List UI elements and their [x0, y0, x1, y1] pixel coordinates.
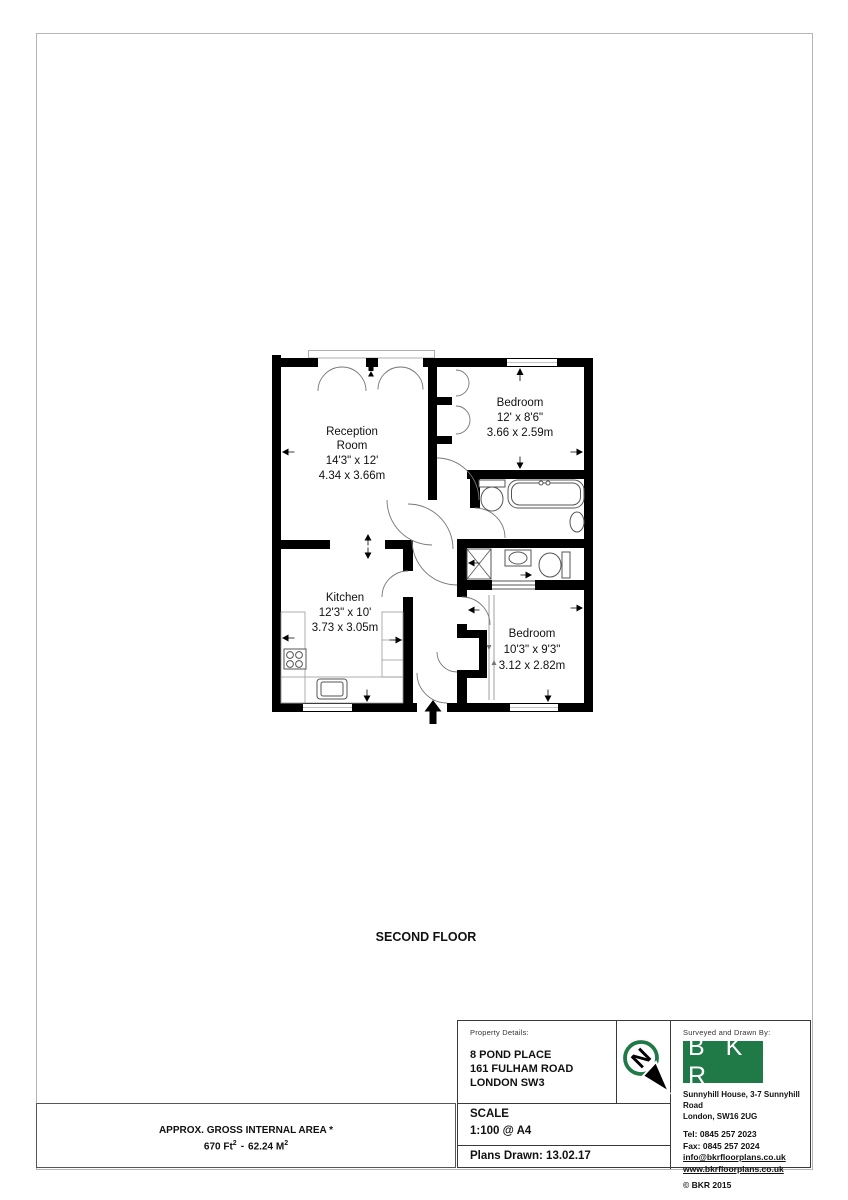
basin [570, 512, 584, 532]
room-label: Room [337, 440, 368, 452]
kitchen-sink-bowl [321, 682, 343, 696]
french-door-arc [318, 367, 342, 391]
room-label: 3.73 x 3.05m [312, 622, 378, 634]
toilet-cistern [479, 480, 505, 487]
toilet-cistern [562, 552, 570, 578]
room-label: Bedroom [497, 397, 544, 409]
bathroom-fixtures [479, 480, 584, 532]
plans-drawn-cell: Plans Drawn: 13.02.17 [458, 1146, 671, 1169]
bath-tap [546, 481, 550, 485]
closet-door-arc [456, 406, 470, 434]
room-label: 12' x 8'6" [497, 412, 543, 424]
room-label: Reception [326, 426, 378, 438]
scale-cell: SCALE 1:100 @ A4 [458, 1104, 671, 1146]
room-label: Kitchen [326, 592, 364, 604]
window-bedroom1-top [507, 359, 557, 367]
copyright-icon: © [683, 1180, 689, 1190]
entrance-arrow [425, 700, 442, 724]
toilet-bowl [481, 487, 503, 511]
floor-title: SECOND FLOOR [306, 930, 546, 944]
tel: Tel: 0845 257 2023 [683, 1129, 812, 1141]
toilet-bowl [539, 553, 561, 577]
scale-value: 1:100 @ A4 [470, 1125, 670, 1137]
entrance-door-arc [417, 673, 447, 703]
dimension-lines [487, 595, 497, 700]
room-label: 3.66 x 2.59m [487, 427, 553, 439]
gross-area-line2: 670 Ft2-62.24 M2 [37, 1137, 455, 1153]
website-link[interactable]: www.bkrfloorplans.co.uk [683, 1164, 812, 1176]
gross-area-line1: APPROX. GROSS INTERNAL AREA * [37, 1124, 455, 1137]
title-block: Property Details: 8 POND PLACE 161 FULHA… [457, 1020, 811, 1168]
room-label: 10'3" x 9'3" [504, 644, 561, 656]
basin-bowl [509, 552, 527, 564]
fax: Fax: 0845 257 2024 [683, 1141, 812, 1153]
bedroom2-door-arc [462, 597, 490, 625]
company-contact: Tel: 0845 257 2023 Fax: 0845 257 2024 in… [683, 1129, 812, 1175]
bath-tap [539, 481, 543, 485]
shower-room-fixtures [467, 549, 570, 579]
company-address: Sunnyhill House, 3-7 Sunnyhill Road Lond… [683, 1089, 811, 1122]
hall-door-arc [412, 540, 457, 585]
room-label: 3.12 x 2.82m [499, 660, 565, 672]
gross-area-note: APPROX. GROSS INTERNAL AREA * 670 Ft2-62… [36, 1103, 456, 1168]
email-link[interactable]: info@bkrfloorplans.co.uk [683, 1152, 812, 1164]
hall-door-arc [387, 500, 432, 545]
french-door-arc [342, 367, 366, 391]
bkr-logo: B K R [683, 1041, 763, 1083]
french-door-arc [378, 367, 401, 390]
room-label: 4.34 x 3.66m [319, 470, 385, 482]
room-label: Bedroom [509, 628, 556, 640]
balcony-outline [309, 351, 435, 359]
surveyor-cell: Surveyed and Drawn By: B K R Sunnyhill H… [671, 1021, 812, 1169]
compass-cell: N [616, 1021, 672, 1104]
window-bedroom2-bottom [510, 704, 558, 712]
plans-drawn: Plans Drawn: 13.02.17 [470, 1150, 670, 1162]
room-label: 12'3" x 10' [319, 607, 372, 619]
copyright: © BKR 2015 [683, 1180, 812, 1190]
closet-door-arc [456, 370, 469, 396]
shower-room-doorway [492, 581, 535, 589]
french-door-arc [401, 367, 424, 390]
kitchen-door-arc [382, 571, 408, 597]
window-kitchen-bottom [303, 704, 352, 712]
north-arrow-icon: N [617, 1021, 672, 1104]
room-label: 14'3" x 12' [326, 455, 379, 467]
bathroom-door-arc [475, 508, 505, 538]
scale-label: SCALE [470, 1108, 670, 1120]
hall-door-arc [408, 504, 453, 549]
kitchen-units [382, 612, 403, 677]
hall-closet-door-arc [437, 652, 457, 672]
bathtub-inner [512, 483, 581, 505]
